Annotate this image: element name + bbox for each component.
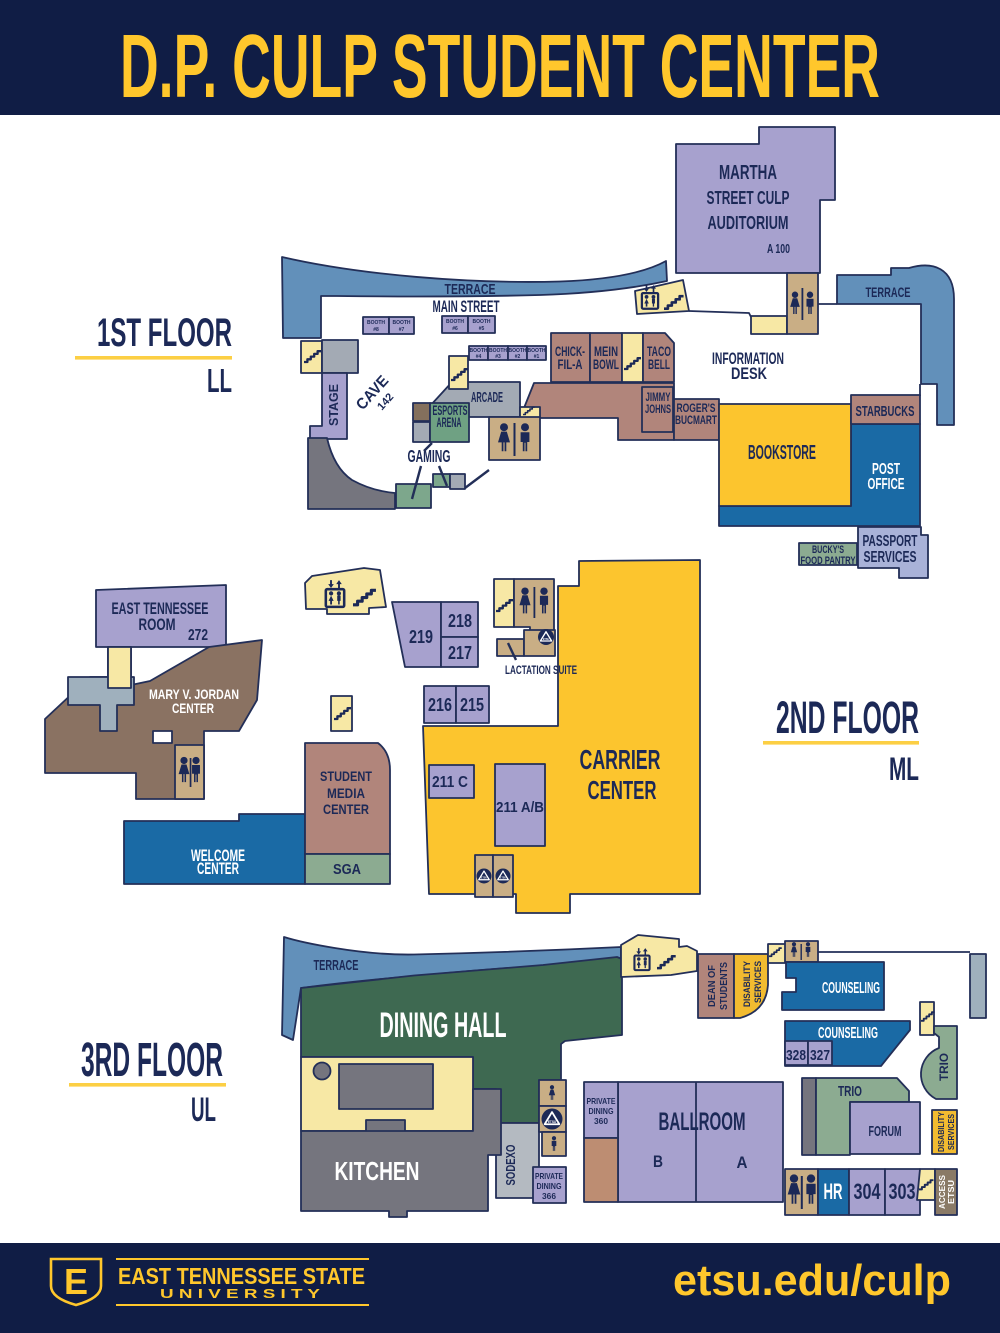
svg-text:AUDITORIUM: AUDITORIUM [708,213,789,233]
svg-text:ARENA: ARENA [437,415,462,430]
svg-text:CENTER: CENTER [197,859,239,878]
svg-text:E: E [64,1261,88,1302]
svg-text:BOOTH: BOOTH [392,320,410,326]
svg-text:PASSPORT: PASSPORT [863,533,918,550]
svg-text:HR: HR [824,1179,843,1204]
svg-text:366: 366 [542,1191,556,1201]
svg-text:COUNSELING: COUNSELING [822,980,880,997]
svg-text:U N I V E R S I T Y: U N I V E R S I T Y [160,1286,320,1301]
svg-text:328: 328 [786,1047,806,1064]
svg-text:ETSU: ETSU [946,1180,956,1204]
svg-text:304: 304 [854,1179,882,1204]
svg-text:211 A/B: 211 A/B [496,799,544,816]
svg-text:#8: #8 [373,327,379,333]
svg-text:TERRACE: TERRACE [866,284,911,300]
svg-text:FIL-A: FIL-A [558,357,583,372]
svg-text:BOOTH: BOOTH [472,319,490,325]
svg-text:FOOD PANTRY: FOOD PANTRY [801,555,856,567]
svg-text:MARTHA: MARTHA [719,162,777,184]
svg-text:STREET CULP: STREET CULP [707,188,790,208]
svg-text:303: 303 [889,1179,916,1204]
svg-text:SERVICES: SERVICES [946,1114,956,1150]
svg-text:TERRACE: TERRACE [314,957,359,974]
svg-text:D.P. CULP STUDENT CENTER: D.P. CULP STUDENT CENTER [120,17,880,117]
svg-text:#3: #3 [495,354,501,360]
svg-text:TRIO: TRIO [838,1083,862,1100]
svg-text:#1: #1 [534,354,540,360]
svg-text:DISABILITY: DISABILITY [742,960,753,1007]
svg-text:DINING HALL: DINING HALL [380,1006,507,1045]
svg-text:DISABILITY: DISABILITY [936,1112,946,1152]
svg-text:PRIVATE: PRIVATE [535,1171,563,1181]
svg-text:217: 217 [448,643,472,663]
svg-text:216: 216 [428,695,452,715]
svg-text:SGA: SGA [333,862,361,878]
svg-text:MAIN STREET: MAIN STREET [433,298,500,316]
svg-text:A 100: A 100 [767,242,790,256]
svg-text:272: 272 [188,627,208,644]
svg-text:TERRACE: TERRACE [445,281,496,298]
svg-text:327: 327 [810,1047,830,1064]
svg-text:#2: #2 [515,354,521,360]
svg-text:TRIO: TRIO [939,1053,951,1081]
svg-text:1ST FLOOR: 1ST FLOOR [97,311,232,355]
svg-text:360: 360 [594,1116,608,1126]
svg-text:DEAN OF: DEAN OF [707,965,718,1007]
svg-text:218: 218 [448,611,472,631]
svg-text:etsu.edu/culp: etsu.edu/culp [673,1256,951,1305]
svg-text:ROOM: ROOM [139,615,176,634]
svg-text:JOHNS: JOHNS [645,402,671,416]
svg-text:DINING: DINING [589,1106,614,1116]
svg-text:ML: ML [889,751,919,787]
svg-text:BOOTH: BOOTH [367,320,385,326]
svg-text:215: 215 [460,695,484,715]
svg-text:UL: UL [191,1091,216,1129]
svg-text:BOWL: BOWL [593,357,619,372]
svg-text:DINING: DINING [537,1181,562,1191]
svg-text:219: 219 [409,627,433,647]
svg-text:STARBUCKS: STARBUCKS [856,403,915,420]
svg-text:SODEXO: SODEXO [503,1145,518,1186]
svg-text:COUNSELING: COUNSELING [818,1025,878,1042]
svg-text:KITCHEN: KITCHEN [335,1156,420,1186]
svg-text:CARRIER: CARRIER [580,744,661,775]
svg-text:BOOTH: BOOTH [446,319,464,325]
svg-text:FORUM: FORUM [869,1123,902,1140]
svg-text:ARCADE: ARCADE [471,390,503,406]
svg-text:STUDENTS: STUDENTS [719,962,730,1010]
svg-text:211 C: 211 C [432,774,468,791]
svg-text:DESK: DESK [731,365,767,383]
svg-text:#6: #6 [452,326,458,332]
svg-text:SERVICES: SERVICES [753,961,764,1003]
svg-text:CENTER: CENTER [588,775,657,805]
svg-text:LL: LL [207,362,232,399]
svg-text:SERVICES: SERVICES [864,549,917,566]
svg-text:STUDENT: STUDENT [320,768,372,784]
svg-text:PRIVATE: PRIVATE [587,1096,616,1106]
svg-text:LACTATION SUITE: LACTATION SUITE [505,663,577,677]
svg-text:BELL: BELL [648,357,670,372]
svg-text:CENTER: CENTER [172,700,214,716]
svg-text:OFFICE: OFFICE [868,476,905,493]
svg-text:2ND FLOOR: 2ND FLOOR [776,692,919,743]
svg-text:A: A [737,1153,748,1172]
svg-text:B: B [653,1152,663,1171]
svg-text:3RD FLOOR: 3RD FLOOR [81,1034,223,1087]
svg-text:#4: #4 [476,354,482,360]
svg-text:#5: #5 [479,326,485,332]
svg-text:BALLROOM: BALLROOM [659,1108,746,1136]
svg-text:GAMING: GAMING [408,446,451,466]
svg-text:BUCMART: BUCMART [675,413,717,427]
svg-text:BOOKSTORE: BOOKSTORE [748,442,816,464]
svg-text:STAGE: STAGE [326,384,341,426]
svg-text:MEDIA: MEDIA [327,785,365,801]
svg-text:#7: #7 [399,327,405,333]
svg-text:CENTER: CENTER [323,801,369,817]
